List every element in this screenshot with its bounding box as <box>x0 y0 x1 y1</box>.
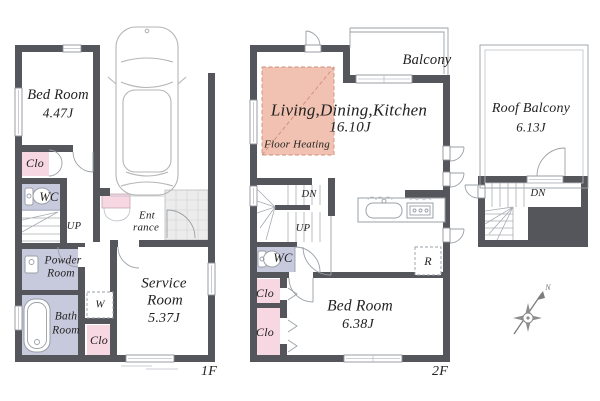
roof-balcony-border-inner <box>485 50 583 183</box>
awning-window-flaps <box>450 147 464 243</box>
stove-icon <box>407 203 433 218</box>
roof-balcony-border-outer <box>480 45 588 188</box>
entrance-label-1: Ent <box>139 211 155 222</box>
closet-1f-door-arcs <box>49 150 62 176</box>
closet-1f-bedroom-label: Clo <box>26 157 44 169</box>
compass-icon <box>513 291 545 334</box>
washer-label: W <box>95 300 104 311</box>
vanity-icon <box>25 256 38 273</box>
stairs-1f <box>22 210 60 241</box>
kitchen-wall-stub <box>405 190 443 198</box>
service-room-label-1: Service <box>141 277 187 292</box>
floor-heating-label: Floor Heating <box>264 140 330 151</box>
sink-icon <box>366 203 402 218</box>
stairs-up-2f-label: UP <box>296 224 310 235</box>
roof-balcony-size: 6.13J <box>516 121 546 134</box>
roof-window-flap <box>465 185 478 198</box>
bedroom-1f-size: 4.47J <box>43 106 74 120</box>
bedroom-2f-size: 6.38J <box>342 318 374 332</box>
exterior-sash-lines <box>121 366 178 369</box>
roof-balcony-name: Roof Balcony <box>492 102 570 116</box>
closet-2f-upper-label: Clo <box>256 287 274 299</box>
wc-2f-label: WC <box>273 252 292 265</box>
bedroom-1f-door-arc <box>73 152 93 172</box>
bath-room-label-2: Room <box>52 325 80 337</box>
service-room-label-2: Room <box>147 294 183 309</box>
bathtub-icon <box>24 299 50 352</box>
wc-1f-label: WC <box>39 191 58 204</box>
bath-room-label-1: Bath <box>55 311 78 323</box>
powder-room-label-1: Powder <box>45 255 82 267</box>
stairs-up-1f-label: UP <box>67 222 81 233</box>
bedroom-2f-door-arc <box>289 278 313 302</box>
top-window-flap <box>306 31 320 45</box>
closet-1f-hall-label: Clo <box>90 334 108 346</box>
wc-2f-door-arc <box>295 247 320 272</box>
cabinet-door-arcs <box>104 208 130 221</box>
closet-2f-lower-label: Clo <box>256 326 274 338</box>
stairwell-void <box>528 207 581 240</box>
service-door-arc <box>118 247 139 268</box>
closet-fold-door-marks <box>288 288 297 352</box>
compass-north-label: N <box>545 284 551 292</box>
service-room-size: 5.37J <box>148 312 180 326</box>
entrance-porch-tiles <box>165 190 208 240</box>
powder-room-label-2: Room <box>47 268 75 280</box>
bedroom-1f-name: Bed Room <box>27 88 89 103</box>
ldk-door-arc <box>303 247 331 275</box>
kitchen-counter <box>358 197 445 222</box>
floor2-label: 2F <box>432 365 448 379</box>
stairs-roof <box>485 183 524 240</box>
floorplan: Bed Room 4.47J Clo WC UP Powder Room Bat… <box>0 0 600 401</box>
stairs-down-roof-label: DN <box>531 189 546 200</box>
car-icon <box>108 27 186 195</box>
ldk-name: Living,Dining,Kitchen <box>271 102 427 119</box>
bedroom-2f-name: Bed Room <box>327 298 393 314</box>
floor1-label: 1F <box>201 365 217 379</box>
walls-roof <box>478 176 588 247</box>
ldk-size: 16.10J <box>329 121 371 136</box>
roof-balcony-door-arc <box>537 148 565 176</box>
balcony-label: Balcony <box>403 53 452 68</box>
refrigerator-label: R <box>424 255 432 267</box>
stairs-down-2f-label: DN <box>302 190 317 201</box>
entrance-label-2: rance <box>133 223 159 234</box>
stair-handrail-wall <box>275 205 310 210</box>
